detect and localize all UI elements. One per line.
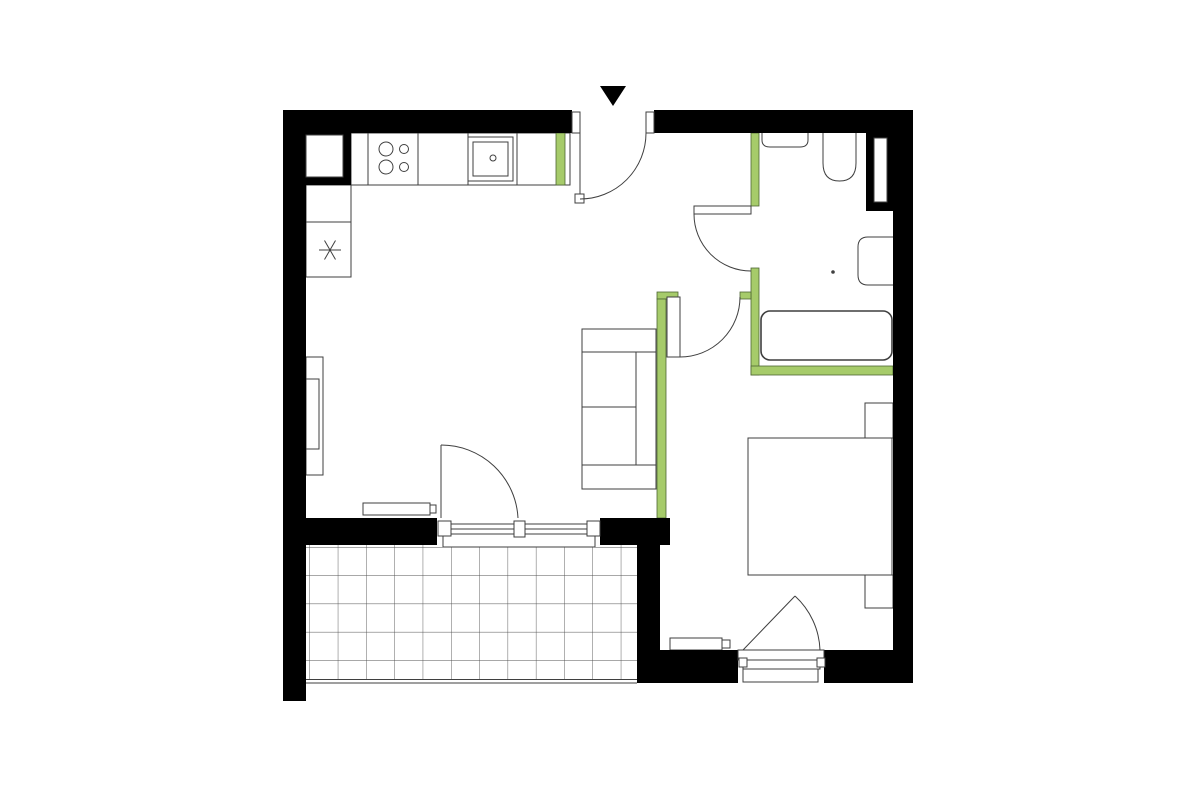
bedroom-ext-door-post-left [739,658,747,667]
radiator-valve [722,640,730,648]
bedroom-balcony-door-swing-arc [795,596,820,650]
entrance-door-swing-arc [580,133,646,199]
radiator-body [670,638,722,650]
floor-plan-drawing [0,0,1200,796]
balcony-tile-floor [306,545,637,679]
green-wall-bathroom-bottom [751,366,893,375]
balcony-door-post-center [514,521,525,537]
bedroom [670,403,893,650]
balcony-door-unit-bedroom [738,650,825,682]
green-wall-kitchen-end [556,133,565,185]
entrance-jamb-right [646,112,654,133]
bedroom-ext-door-sill-inner [743,660,820,669]
washbasin [762,133,808,147]
radiator-living [363,503,436,515]
floor-plan-canvas [0,0,1200,796]
wall-right [893,110,913,683]
living-balcony-door [441,445,518,518]
balcony [306,545,637,683]
wall-bedroom-bottom-right [824,650,913,683]
kitchen-cabinet [306,185,351,222]
nightstand-top [865,403,893,438]
bathroom-door-leaf [694,206,751,214]
kitchen-counter [351,133,570,185]
radiator-valve [430,505,436,513]
bedroom-balcony-door [743,596,820,650]
bedroom-ext-door-sill-outer [743,669,818,682]
shaft-niche-kitchen [306,135,343,177]
balcony-railing [306,680,637,684]
nightstand-bottom [865,575,893,608]
wall-top-right [654,110,913,133]
bedroom-door [667,297,740,357]
bedroom-door-swing-arc [680,297,740,357]
sofa [582,329,656,489]
wall-living-bottom-right [600,518,670,545]
balcony-door-post-right [587,521,600,536]
radiator-body [363,503,430,515]
balcony-door-post-left [438,521,451,536]
bathtub [761,311,892,360]
bed [748,438,892,575]
bathroom-door-swing-arc [694,214,751,271]
radiator-bedroom [670,638,730,650]
entrance-jamb-left [572,112,580,133]
toilet [823,133,856,181]
floor-drain [831,270,835,274]
shaft-niche-bathroom [874,138,887,202]
wall-shelf-inner [306,379,319,449]
bedroom-ext-door-post-right [817,658,825,667]
kitchen-sink [468,137,513,181]
wall-bedroom-bottom-left [660,650,738,683]
wall-left [283,110,306,701]
wall-living-bottom-left [306,518,437,545]
bathroom-door [694,206,751,271]
entrance-arrow-icon [600,86,626,106]
living-balcony-door-swing-arc [441,445,518,518]
green-wall-living-bedroom-partition [657,299,666,518]
bedroom-balcony-door-leaf [743,596,795,650]
bedroom-ext-door-frame [738,650,824,660]
green-wall-hall-stub [740,292,751,299]
green-wall-bathroom-upper [751,133,759,206]
washing-machine [858,237,893,285]
green-wall-bathroom-lower [751,268,759,375]
entrance-door [575,133,646,203]
bedroom-door-leaf [667,297,680,357]
wall-balcony-bedroom-divider [637,545,660,683]
living-room [306,329,656,515]
